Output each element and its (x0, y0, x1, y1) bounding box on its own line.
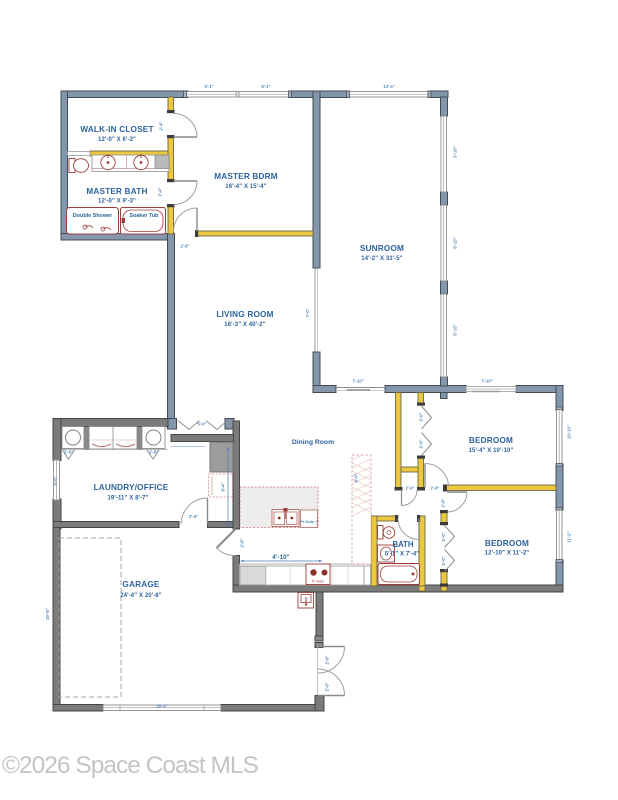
svg-text:2'-6": 2'-6" (189, 514, 198, 519)
svg-text:7'-0": 7'-0" (305, 308, 310, 317)
svg-text:2'-4": 2'-4" (158, 187, 163, 196)
svg-text:5'-1": 5'-1" (261, 84, 270, 89)
svg-text:13'-4": 13'-4" (383, 84, 394, 89)
svg-text:2'-0": 2'-0" (441, 556, 446, 565)
svg-text:19'-11" X 8'-7": 19'-11" X 8'-7" (107, 496, 148, 502)
svg-text:2'-6": 2'-6" (64, 450, 73, 455)
svg-text:16'-4" X 15'-4": 16'-4" X 15'-4" (225, 184, 266, 190)
svg-text:2'-4": 2'-4" (159, 121, 164, 130)
svg-text:MASTER BATH: MASTER BATH (86, 187, 147, 196)
svg-text:2'-6": 2'-6" (149, 450, 158, 455)
svg-text:5'-0": 5'-0" (53, 476, 58, 485)
svg-text:8'-4": 8'-4" (221, 482, 226, 491)
svg-text:2'-0": 2'-0" (419, 439, 424, 448)
svg-text:BEDROOM: BEDROOM (469, 436, 513, 445)
svg-text:Soaker Tub: Soaker Tub (130, 213, 160, 219)
svg-text:2'-8": 2'-8" (441, 498, 446, 507)
svg-text:5'-10": 5'-10" (453, 237, 458, 248)
svg-text:15'-4" X 10'-10": 15'-4" X 10'-10" (469, 448, 514, 454)
svg-text:GARAGE: GARAGE (122, 580, 159, 589)
svg-text:5'-10": 5'-10" (453, 324, 458, 335)
svg-text:10'-10": 10'-10" (567, 425, 572, 439)
svg-text:20'-8": 20'-8" (45, 608, 50, 619)
svg-text:LAUNDRY/OFFICE: LAUNDRY/OFFICE (94, 483, 169, 492)
svg-text:2'-8": 2'-8" (325, 682, 330, 691)
svg-text:5'-1": 5'-1" (204, 84, 213, 89)
svg-text:5'-10": 5'-10" (453, 146, 458, 157)
svg-text:2'-0": 2'-0" (419, 412, 424, 421)
svg-text:LIVING ROOM: LIVING ROOM (216, 310, 273, 319)
svg-text:©2026 Space Coast MLS: ©2026 Space Coast MLS (2, 752, 258, 779)
svg-text:Pr-Sale +: Pr-Sale + (300, 519, 318, 524)
svg-text:2'-8": 2'-8" (180, 244, 189, 249)
svg-text:11'-2": 11'-2" (567, 531, 572, 542)
svg-text:12'-0" X 9'-3": 12'-0" X 9'-3" (98, 199, 136, 205)
svg-text:7'-10": 7'-10" (352, 379, 363, 384)
svg-text:Dining Room: Dining Room (292, 439, 334, 446)
svg-text:Pr-Nate: Pr-Nate (312, 580, 324, 584)
svg-text:2'-8": 2'-8" (240, 538, 245, 547)
svg-text:Double Shower: Double Shower (73, 213, 113, 219)
svg-text:5'-0": 5'-0" (197, 422, 206, 427)
svg-text:2'-8": 2'-8" (430, 486, 439, 491)
svg-text:12'-0" X 6'-2": 12'-0" X 6'-2" (98, 137, 136, 143)
svg-text:5'-1" X 7'-4": 5'-1" X 7'-4" (385, 552, 420, 558)
svg-text:2'-8": 2'-8" (325, 655, 330, 664)
svg-text:16'-3" X 40'-2": 16'-3" X 40'-2" (224, 322, 265, 328)
svg-text:14'-2" X 33'-5": 14'-2" X 33'-5" (361, 256, 402, 262)
svg-text:SUNROOM: SUNROOM (360, 244, 404, 253)
svg-text:4'-10": 4'-10" (272, 554, 289, 561)
svg-text:16'-0": 16'-0" (156, 704, 167, 709)
svg-text:2'-0": 2'-0" (405, 486, 414, 491)
svg-text:BATH: BATH (392, 540, 413, 549)
svg-text:4'-0": 4'-0" (354, 473, 359, 482)
svg-text:7'-10": 7'-10" (481, 379, 492, 384)
svg-text:2'-0": 2'-0" (441, 532, 446, 541)
svg-text:24'-4" X 20'-8": 24'-4" X 20'-8" (120, 593, 161, 599)
svg-text:WALK-IN CLOSET: WALK-IN CLOSET (80, 125, 153, 134)
svg-text:BEDROOM: BEDROOM (485, 539, 529, 548)
svg-text:12'-10" X 11'-2": 12'-10" X 11'-2" (485, 551, 530, 557)
svg-text:MASTER BDRM: MASTER BDRM (214, 172, 278, 181)
